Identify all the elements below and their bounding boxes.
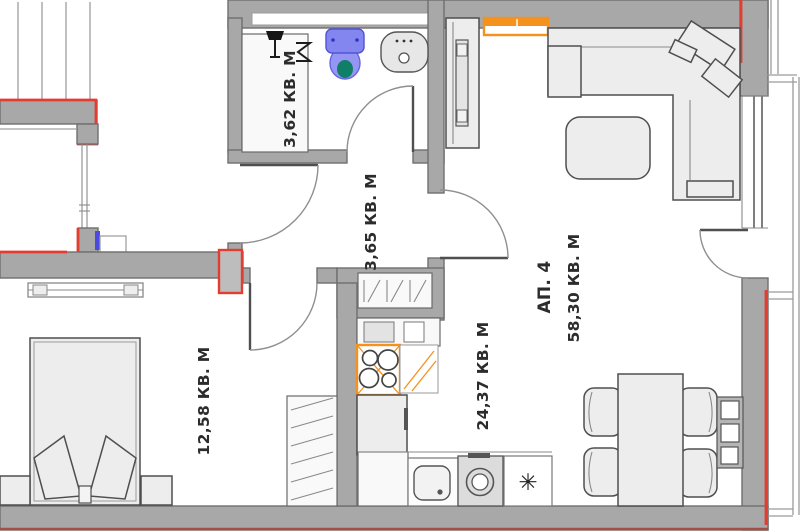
bedroom-kitchen-divider xyxy=(337,283,357,506)
sofa-chaise xyxy=(548,46,581,97)
dining-chair xyxy=(584,388,622,436)
kitchen-cabinet xyxy=(357,395,408,455)
bedroom-door xyxy=(250,283,317,350)
dishwasher-asterisk: ✳ xyxy=(518,470,537,496)
kitchen-living-area-label: 24,37 КВ. М xyxy=(474,322,492,431)
dining-chair xyxy=(584,448,622,496)
coffee-table xyxy=(566,117,650,179)
entry-pillar-red xyxy=(219,250,242,293)
bedroom-area-label: 12,58 КВ. М xyxy=(195,347,213,456)
washing-machine-icon xyxy=(458,453,503,506)
nightstand-left xyxy=(0,476,30,505)
bedroom-wardrobe xyxy=(287,396,337,506)
shaft-pipe-lines xyxy=(79,144,90,228)
sink-icon xyxy=(381,32,428,72)
bottom-exterior-wall xyxy=(0,506,768,530)
kitchen-counter-top xyxy=(357,318,440,346)
kitchen-base-cabinet xyxy=(358,452,408,506)
nightstand-right xyxy=(141,476,172,505)
bedroom-door-jamb-right xyxy=(317,268,337,283)
blue-marker xyxy=(95,231,100,250)
wall-radiator-orange xyxy=(484,18,548,35)
bathroom: 3,62 КВ. М xyxy=(242,29,428,152)
bedroom-radiator xyxy=(28,283,143,297)
stair-lines xyxy=(18,2,90,100)
dining-chair xyxy=(679,388,717,436)
neighbour-wall-block-top xyxy=(0,100,98,145)
tv-unit xyxy=(446,18,479,148)
bathroom-left-wall xyxy=(228,18,242,152)
living-room-door xyxy=(440,190,508,258)
wall-duct xyxy=(252,13,442,25)
balcony-door xyxy=(700,230,748,278)
hall-wardrobe xyxy=(358,273,432,308)
apartment-total-area-label: 58,30 КВ. М xyxy=(565,234,583,343)
living-room: АП. 4 58,30 КВ. М xyxy=(440,18,743,506)
toilet-icon xyxy=(326,29,364,79)
right-lower-wall xyxy=(742,278,768,530)
hallway-area-label: 3,65 КВ. М xyxy=(362,173,380,271)
neighbour-wall-block-mid xyxy=(78,228,126,252)
hallway: 3,65 КВ. М xyxy=(240,165,432,308)
sofa-armrest xyxy=(687,181,733,197)
dining-set xyxy=(584,374,717,506)
bedroom-top-wall xyxy=(0,252,243,278)
bathroom-living-divider xyxy=(428,0,444,193)
living-room-window xyxy=(742,96,768,228)
counter-dryer xyxy=(400,345,438,393)
dining-chair xyxy=(679,449,717,497)
bathroom-door xyxy=(347,86,413,152)
bed xyxy=(30,338,140,505)
bedroom-door-jamb-left xyxy=(243,268,250,283)
dining-table xyxy=(618,374,683,506)
stove-burners-icon xyxy=(357,345,400,395)
apartment-label: АП. 4 xyxy=(535,260,555,313)
top-right-corner-wall xyxy=(740,0,768,96)
dishwasher-icon: ✳ xyxy=(504,456,552,506)
entry-door xyxy=(240,165,318,243)
floor-plan: 3,62 КВ. М 3,65 КВ. М xyxy=(0,0,800,532)
kitchen: ✳ 24,37 КВ. М xyxy=(357,318,552,506)
bathroom-area-label: 3,62 КВ. М xyxy=(281,50,299,148)
dining-radiator xyxy=(717,397,743,468)
bedroom: 12,58 КВ. М xyxy=(0,283,337,506)
kitchen-sink-icon xyxy=(408,458,458,506)
